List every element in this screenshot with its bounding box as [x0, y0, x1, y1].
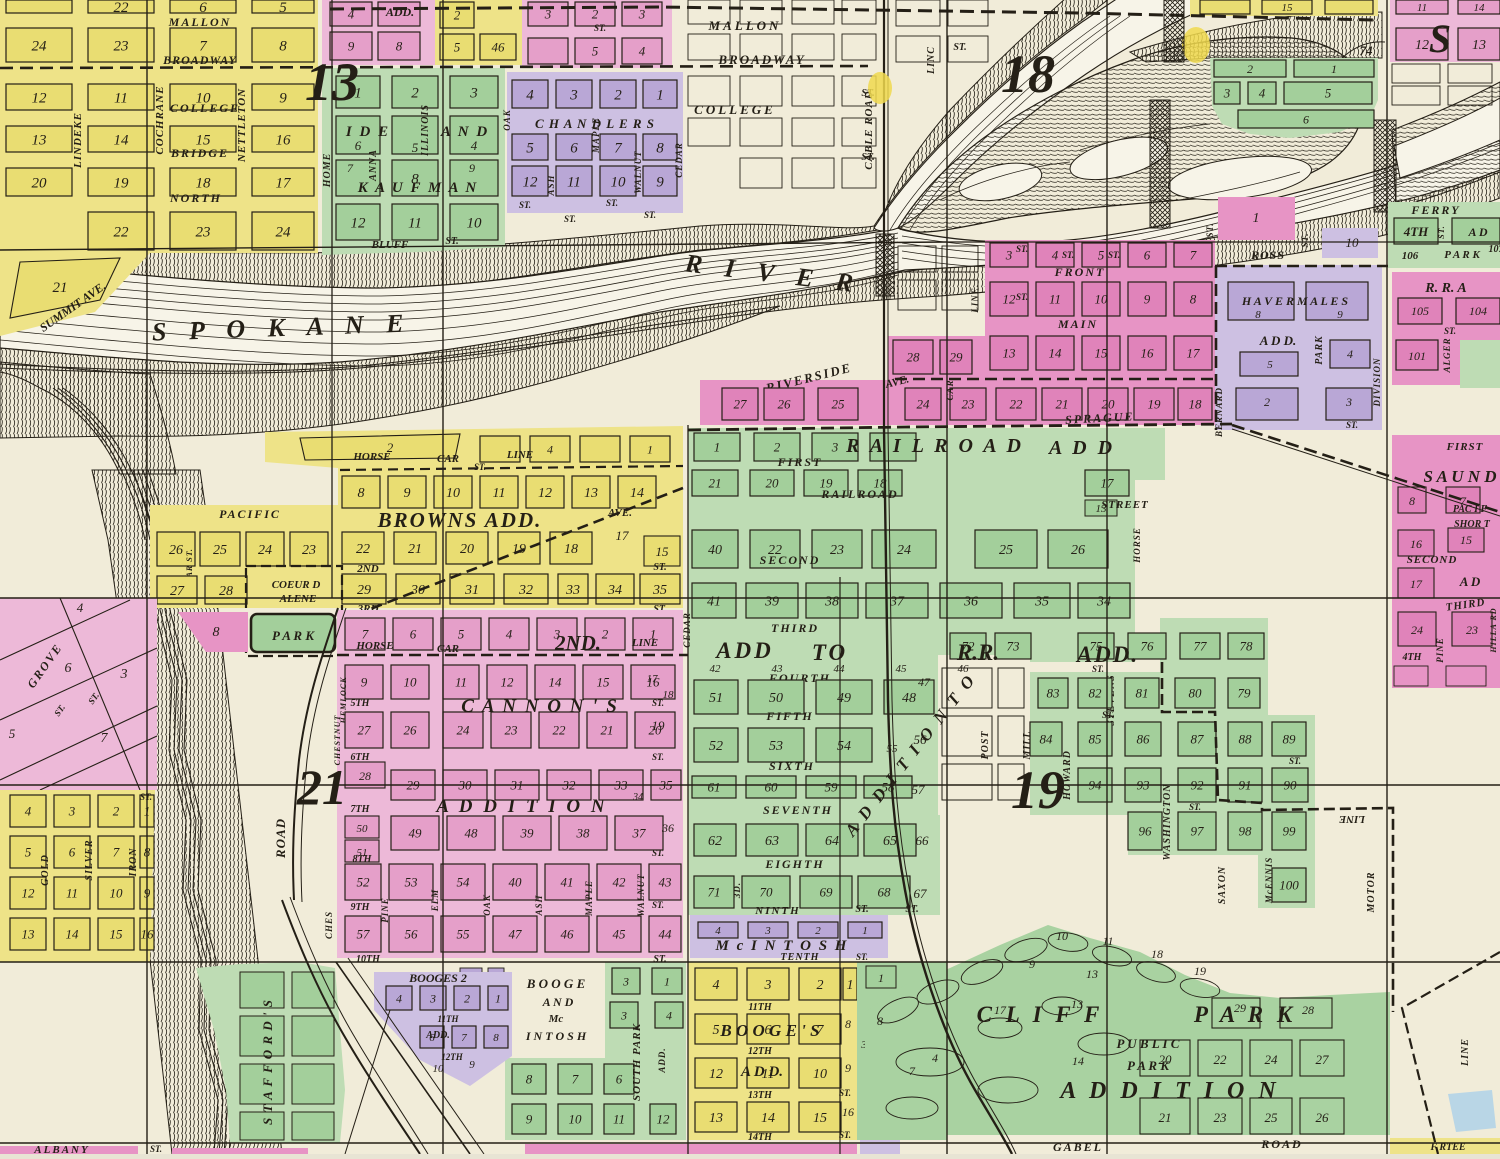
svg-text:9: 9: [526, 1112, 533, 1127]
svg-text:86: 86: [1137, 732, 1151, 747]
svg-text:ST.: ST.: [564, 214, 576, 224]
svg-text:23: 23: [1214, 1110, 1228, 1125]
svg-text:4: 4: [547, 442, 553, 456]
svg-text:25: 25: [213, 543, 227, 558]
svg-text:70: 70: [760, 885, 774, 900]
svg-text:39: 39: [520, 826, 535, 841]
svg-text:101: 101: [1408, 349, 1426, 363]
svg-text:R.R.: R.R.: [956, 640, 999, 665]
svg-text:11: 11: [1417, 2, 1427, 14]
svg-text:ST.: ST.: [1016, 292, 1028, 302]
svg-text:WALNUT: WALNUT: [633, 150, 643, 193]
svg-text:6: 6: [410, 627, 417, 642]
svg-text:66: 66: [916, 833, 930, 848]
svg-text:SOUTH PARK: SOUTH PARK: [631, 1023, 643, 1101]
svg-text:FRONT: FRONT: [1054, 265, 1106, 279]
svg-text:5TH: 5TH: [351, 698, 371, 709]
svg-text:DIVISION: DIVISION: [1372, 357, 1382, 407]
svg-text:24: 24: [1265, 1052, 1279, 1067]
svg-text:SEVENTH: SEVENTH: [763, 803, 833, 817]
svg-text:68: 68: [878, 885, 892, 900]
svg-text:ST.: ST.: [644, 210, 656, 220]
svg-text:21: 21: [601, 723, 614, 738]
svg-text:81: 81: [1136, 686, 1149, 701]
svg-text:14: 14: [549, 675, 563, 690]
svg-text:5: 5: [1325, 86, 1332, 101]
svg-text:R. R. A: R. R. A: [1424, 281, 1467, 296]
svg-text:OAK: OAK: [482, 894, 492, 916]
svg-text:83: 83: [1047, 686, 1061, 701]
svg-text:50: 50: [357, 823, 369, 835]
svg-text:BERNARD: BERNARD: [1214, 387, 1224, 438]
svg-text:107: 107: [1489, 244, 1500, 255]
svg-text:BROWNS ADD.: BROWNS ADD.: [377, 508, 543, 532]
svg-text:CABLE ROAD: CABLE ROAD: [863, 90, 875, 169]
svg-text:3: 3: [1345, 395, 1352, 409]
svg-text:1: 1: [495, 991, 501, 1005]
svg-text:4: 4: [715, 925, 721, 937]
svg-text:2: 2: [113, 804, 120, 819]
svg-text:10: 10: [433, 1063, 445, 1075]
svg-text:MOTOR: MOTOR: [1366, 872, 1377, 914]
svg-text:55: 55: [457, 927, 471, 942]
svg-text:11: 11: [613, 1112, 625, 1127]
svg-text:CAR: CAR: [437, 643, 459, 655]
svg-text:CHESTNUT: CHESTNUT: [333, 715, 342, 766]
svg-text:6TH: 6TH: [351, 752, 371, 763]
svg-text:54: 54: [457, 875, 471, 890]
svg-text:MAIN: MAIN: [1057, 317, 1098, 331]
svg-text:28: 28: [219, 584, 233, 599]
svg-text:16: 16: [1141, 346, 1155, 361]
svg-text:3: 3: [569, 87, 578, 103]
svg-text:34: 34: [607, 583, 622, 598]
svg-text:Mc: Mc: [548, 1013, 564, 1025]
svg-text:45: 45: [896, 663, 908, 675]
svg-text:1: 1: [1253, 211, 1260, 226]
svg-text:2: 2: [817, 978, 824, 993]
svg-text:ST.: ST.: [1108, 250, 1120, 260]
svg-text:B O O G E ' S: B O O G E ' S: [719, 1021, 819, 1040]
svg-text:13: 13: [709, 1111, 723, 1126]
svg-text:5: 5: [1098, 248, 1105, 263]
svg-text:13: 13: [584, 486, 598, 501]
svg-text:P A R K: P A R K: [1444, 249, 1480, 261]
svg-text:SECOND: SECOND: [1407, 554, 1458, 566]
svg-text:BROADWAY: BROADWAY: [162, 53, 237, 67]
svg-text:3D.: 3D.: [732, 882, 742, 899]
svg-text:17: 17: [276, 175, 293, 191]
svg-text:11: 11: [1102, 934, 1113, 948]
svg-text:PACIFIC: PACIFIC: [219, 507, 281, 521]
svg-text:5: 5: [25, 845, 32, 860]
svg-text:1: 1: [1331, 62, 1337, 76]
svg-text:22: 22: [114, 0, 130, 16]
svg-text:26: 26: [404, 723, 418, 738]
svg-text:10: 10: [1056, 929, 1068, 943]
svg-text:LINE: LINE: [506, 449, 533, 461]
svg-text:21: 21: [1056, 397, 1069, 412]
svg-text:4: 4: [1259, 86, 1266, 101]
svg-text:P U B L I C: P U B L I C: [1117, 1036, 1180, 1051]
svg-text:4TH: 4TH: [1402, 652, 1423, 663]
svg-text:5: 5: [279, 0, 287, 16]
svg-text:22: 22: [114, 224, 130, 240]
svg-text:9: 9: [469, 161, 475, 175]
svg-text:6: 6: [1303, 112, 1309, 126]
svg-text:ADD.: ADD.: [1075, 642, 1139, 667]
svg-text:A D D I T I O N: A D D I T I O N: [435, 796, 607, 817]
svg-text:3: 3: [831, 440, 839, 455]
svg-text:40: 40: [509, 875, 523, 890]
svg-text:2: 2: [815, 925, 821, 937]
svg-text:9: 9: [469, 1059, 475, 1071]
svg-text:R A I L R O A D: R A I L R O A D: [845, 435, 1024, 457]
svg-text:8: 8: [358, 486, 365, 501]
svg-text:4: 4: [396, 991, 402, 1005]
svg-text:97: 97: [1191, 824, 1205, 839]
svg-text:A D D.: A D D.: [1259, 333, 1296, 348]
svg-text:2: 2: [1247, 62, 1253, 76]
svg-text:24: 24: [276, 224, 292, 240]
svg-text:55: 55: [887, 743, 899, 755]
svg-text:27: 27: [170, 584, 185, 599]
svg-text:8: 8: [279, 38, 287, 54]
svg-text:9: 9: [1144, 292, 1151, 307]
svg-text:MALLON: MALLON: [168, 15, 232, 29]
svg-text:8: 8: [396, 39, 403, 54]
svg-text:S: S: [1429, 16, 1451, 61]
svg-text:10: 10: [1095, 292, 1109, 307]
svg-text:8: 8: [1255, 309, 1261, 321]
svg-text:21: 21: [53, 280, 68, 296]
svg-text:37: 37: [889, 595, 905, 610]
svg-text:18: 18: [1151, 947, 1163, 961]
svg-text:51: 51: [709, 691, 723, 706]
svg-text:9: 9: [279, 90, 287, 106]
svg-text:LINE: LINE: [1460, 1038, 1471, 1067]
svg-text:20: 20: [460, 542, 474, 557]
svg-text:50: 50: [769, 691, 783, 706]
svg-text:ADD.: ADD.: [657, 1047, 667, 1073]
svg-text:98: 98: [1239, 824, 1253, 839]
svg-text:23: 23: [1466, 623, 1478, 637]
svg-text:16: 16: [1410, 537, 1422, 551]
svg-text:31: 31: [464, 583, 479, 598]
svg-text:BLUFF: BLUFF: [371, 239, 409, 251]
svg-text:7: 7: [461, 1032, 467, 1044]
svg-text:13: 13: [1086, 967, 1098, 981]
svg-text:21: 21: [408, 542, 422, 557]
svg-text:ST.: ST.: [1016, 244, 1028, 254]
svg-text:6: 6: [355, 138, 362, 153]
svg-text:84: 84: [1040, 732, 1054, 747]
svg-text:12: 12: [657, 1112, 671, 1127]
svg-text:SECOND: SECOND: [760, 553, 821, 567]
svg-text:15: 15: [813, 1111, 827, 1126]
svg-text:8: 8: [845, 1017, 851, 1031]
svg-text:8: 8: [493, 1032, 499, 1044]
svg-text:2: 2: [774, 440, 781, 455]
svg-text:23: 23: [302, 543, 316, 558]
svg-text:52: 52: [709, 739, 723, 754]
svg-text:22: 22: [1214, 1052, 1228, 1067]
svg-text:44: 44: [659, 927, 673, 942]
svg-text:4: 4: [25, 804, 32, 819]
svg-text:6: 6: [65, 661, 72, 676]
svg-text:ST.: ST.: [1205, 223, 1215, 238]
svg-text:14: 14: [630, 486, 644, 501]
svg-text:ANNA: ANNA: [368, 149, 379, 182]
svg-text:12: 12: [501, 675, 515, 690]
svg-text:21: 21: [1159, 1110, 1172, 1125]
svg-text:38: 38: [824, 595, 839, 610]
svg-text:ST.: ST.: [594, 23, 606, 33]
svg-text:49: 49: [409, 826, 423, 841]
svg-text:100: 100: [1279, 878, 1299, 893]
svg-text:34: 34: [1096, 595, 1111, 610]
svg-text:24: 24: [917, 397, 931, 412]
svg-text:63: 63: [765, 834, 779, 849]
svg-text:ST.: ST.: [140, 792, 152, 802]
svg-text:1: 1: [647, 442, 653, 456]
svg-text:37: 37: [632, 826, 647, 841]
svg-text:5: 5: [412, 140, 419, 155]
svg-text:LINE: LINE: [970, 287, 980, 314]
svg-text:8: 8: [1190, 292, 1197, 307]
svg-text:NETTLETON: NETTLETON: [236, 88, 248, 163]
svg-text:3: 3: [68, 804, 76, 819]
svg-text:62: 62: [708, 834, 722, 849]
svg-text:LINDEKE: LINDEKE: [72, 112, 84, 169]
svg-text:6: 6: [69, 845, 76, 860]
svg-text:ST.: ST.: [445, 236, 458, 247]
svg-text:19: 19: [1194, 964, 1206, 978]
svg-text:2: 2: [411, 85, 419, 101]
svg-text:36: 36: [963, 595, 978, 610]
svg-text:2ND.: 2ND.: [554, 631, 601, 655]
svg-text:8TH: 8TH: [353, 854, 373, 865]
svg-text:23: 23: [505, 723, 519, 738]
svg-text:21: 21: [709, 476, 722, 491]
svg-text:11: 11: [455, 675, 467, 690]
svg-text:2ND: 2ND: [356, 563, 378, 575]
svg-text:ROAD: ROAD: [1260, 1137, 1302, 1151]
svg-text:3: 3: [764, 978, 772, 993]
svg-text:P A R K: P A R K: [1193, 1002, 1296, 1027]
svg-text:5: 5: [1267, 359, 1273, 371]
svg-text:27: 27: [1316, 1052, 1330, 1067]
svg-text:ST.: ST.: [652, 698, 664, 708]
svg-text:I D E: I D E: [345, 124, 390, 140]
svg-text:13: 13: [1003, 346, 1017, 361]
svg-text:A D: A D: [1467, 225, 1487, 239]
svg-text:12: 12: [1415, 38, 1429, 53]
svg-text:105: 105: [1411, 304, 1429, 318]
svg-text:22: 22: [1010, 397, 1024, 412]
svg-text:BRIDGE: BRIDGE: [170, 146, 229, 160]
svg-text:ST.: ST.: [653, 562, 666, 573]
svg-text:22: 22: [356, 542, 370, 557]
svg-text:25: 25: [832, 397, 846, 412]
svg-text:FIFTH: FIFTH: [765, 709, 813, 723]
svg-text:MAPLE: MAPLE: [591, 117, 601, 154]
svg-text:49: 49: [837, 691, 851, 706]
svg-text:11TH: 11TH: [437, 1014, 459, 1024]
svg-text:25: 25: [1265, 1110, 1279, 1125]
svg-text:FIRST: FIRST: [777, 455, 823, 469]
svg-text:2: 2: [614, 87, 622, 103]
svg-text:COEUR D: COEUR D: [272, 579, 321, 591]
svg-text:47: 47: [509, 927, 523, 942]
svg-text:82: 82: [1089, 686, 1103, 701]
svg-text:10: 10: [110, 886, 124, 901]
svg-text:53: 53: [769, 739, 783, 754]
svg-text:35: 35: [652, 583, 667, 598]
svg-text:9: 9: [361, 675, 368, 690]
svg-text:MAPLE: MAPLE: [584, 880, 594, 917]
svg-text:77: 77: [1194, 639, 1208, 654]
svg-text:ST.: ST.: [1444, 326, 1456, 336]
svg-text:6: 6: [1144, 248, 1151, 263]
svg-text:11: 11: [114, 90, 128, 106]
svg-text:CEDAR: CEDAR: [674, 142, 684, 178]
svg-text:K A U F M A N: K A U F M A N: [357, 180, 478, 196]
svg-text:104: 104: [1469, 304, 1487, 318]
svg-text:57: 57: [912, 782, 926, 797]
svg-text:26: 26: [778, 397, 792, 412]
svg-text:18: 18: [196, 175, 212, 191]
svg-text:13: 13: [1472, 38, 1486, 53]
svg-text:42: 42: [710, 663, 722, 675]
svg-text:10TH: 10TH: [356, 954, 381, 965]
svg-text:LINE: LINE: [631, 637, 658, 649]
svg-text:11TH: 11TH: [748, 1002, 773, 1013]
svg-text:ILLINOIS: ILLINOIS: [420, 104, 431, 157]
svg-text:24: 24: [457, 723, 471, 738]
svg-text:ST.: ST.: [1189, 802, 1201, 812]
svg-text:71: 71: [708, 885, 721, 900]
svg-text:14TH: 14TH: [748, 1132, 773, 1143]
svg-text:25: 25: [999, 543, 1013, 558]
svg-text:12: 12: [1003, 292, 1017, 307]
svg-text:4: 4: [506, 627, 513, 642]
svg-text:ST.: ST.: [519, 200, 531, 210]
svg-text:9TH: 9TH: [351, 902, 371, 913]
svg-text:2: 2: [454, 8, 461, 23]
svg-text:LINC: LINC: [926, 46, 937, 75]
svg-text:HILLA RD: HILLA RD: [1489, 607, 1498, 653]
svg-text:9: 9: [656, 174, 664, 190]
svg-text:5: 5: [454, 40, 461, 55]
svg-text:29: 29: [950, 350, 964, 365]
svg-text:14: 14: [1072, 1054, 1084, 1068]
svg-text:53: 53: [405, 875, 419, 890]
svg-text:7: 7: [1190, 248, 1197, 263]
svg-text:99: 99: [1283, 824, 1297, 839]
svg-text:13TH: 13TH: [748, 1090, 773, 1101]
svg-text:15: 15: [1460, 533, 1472, 547]
svg-text:CHES: CHES: [324, 911, 334, 939]
svg-text:A D D I T I O N: A D D I T I O N: [1058, 1078, 1279, 1104]
svg-text:23: 23: [830, 543, 844, 558]
svg-text:POST: POST: [980, 731, 991, 760]
svg-text:32: 32: [518, 583, 533, 598]
svg-text:A D D.: A D D.: [740, 1064, 783, 1080]
svg-text:17: 17: [1410, 577, 1423, 591]
svg-text:12: 12: [22, 886, 36, 901]
svg-text:7: 7: [909, 1064, 916, 1078]
svg-text:41: 41: [561, 875, 574, 890]
svg-text:CEDAR: CEDAR: [682, 612, 692, 648]
svg-text:12: 12: [351, 215, 367, 231]
svg-text:21: 21: [296, 759, 347, 815]
svg-text:52: 52: [357, 875, 371, 890]
svg-text:4: 4: [713, 978, 720, 993]
svg-text:P A R K: P A R K: [272, 628, 315, 643]
svg-text:16: 16: [842, 1105, 854, 1119]
svg-text:14: 14: [1049, 346, 1063, 361]
svg-text:7: 7: [113, 845, 120, 860]
svg-text:13: 13: [305, 52, 359, 112]
svg-text:5: 5: [9, 726, 16, 741]
svg-text:67: 67: [914, 886, 928, 901]
svg-text:2: 2: [464, 991, 470, 1005]
svg-text:1: 1: [714, 440, 721, 455]
svg-text:12TH: 12TH: [441, 1052, 463, 1062]
svg-text:WALNUT: WALNUT: [636, 873, 646, 916]
svg-text:18: 18: [1189, 397, 1203, 412]
svg-text:23: 23: [962, 397, 976, 412]
svg-text:3: 3: [622, 974, 629, 988]
svg-text:9: 9: [1029, 957, 1035, 971]
svg-text:3: 3: [1005, 248, 1013, 263]
svg-text:85: 85: [1089, 732, 1103, 747]
svg-text:ST.: ST.: [856, 952, 868, 962]
svg-text:24: 24: [32, 38, 48, 54]
svg-text:RAILROAD: RAILROAD: [820, 487, 898, 501]
svg-text:5: 5: [592, 44, 599, 59]
svg-text:TO: TO: [812, 640, 848, 665]
svg-text:18: 18: [663, 689, 675, 701]
svg-text:S A U N D: S A U N D: [1423, 467, 1496, 486]
svg-text:20: 20: [32, 175, 48, 191]
svg-text:48: 48: [465, 826, 479, 841]
svg-text:5: 5: [526, 140, 534, 156]
svg-text:COLLEGE: COLLEGE: [170, 101, 240, 115]
svg-text:ST.: ST.: [1102, 710, 1114, 720]
svg-text:20: 20: [766, 476, 780, 491]
svg-text:1: 1: [664, 974, 670, 988]
svg-text:24: 24: [1411, 623, 1423, 637]
svg-text:ST.: ST.: [1289, 756, 1301, 766]
svg-text:10: 10: [404, 675, 418, 690]
svg-text:7: 7: [347, 161, 354, 175]
svg-text:6: 6: [199, 0, 207, 16]
svg-text:C L I F F: C L I F F: [977, 1002, 1104, 1027]
svg-text:11: 11: [567, 174, 581, 190]
svg-text:26: 26: [1316, 1110, 1330, 1125]
svg-text:15: 15: [1095, 346, 1109, 361]
svg-text:OAK: OAK: [502, 109, 512, 131]
svg-text:4: 4: [526, 87, 534, 103]
svg-text:17: 17: [616, 528, 630, 543]
svg-text:2: 2: [1264, 395, 1270, 409]
svg-text:73: 73: [1007, 639, 1021, 654]
svg-text:COLLEGE: COLLEGE: [694, 102, 776, 117]
svg-text:17: 17: [647, 673, 659, 685]
svg-text:2: 2: [602, 627, 609, 642]
